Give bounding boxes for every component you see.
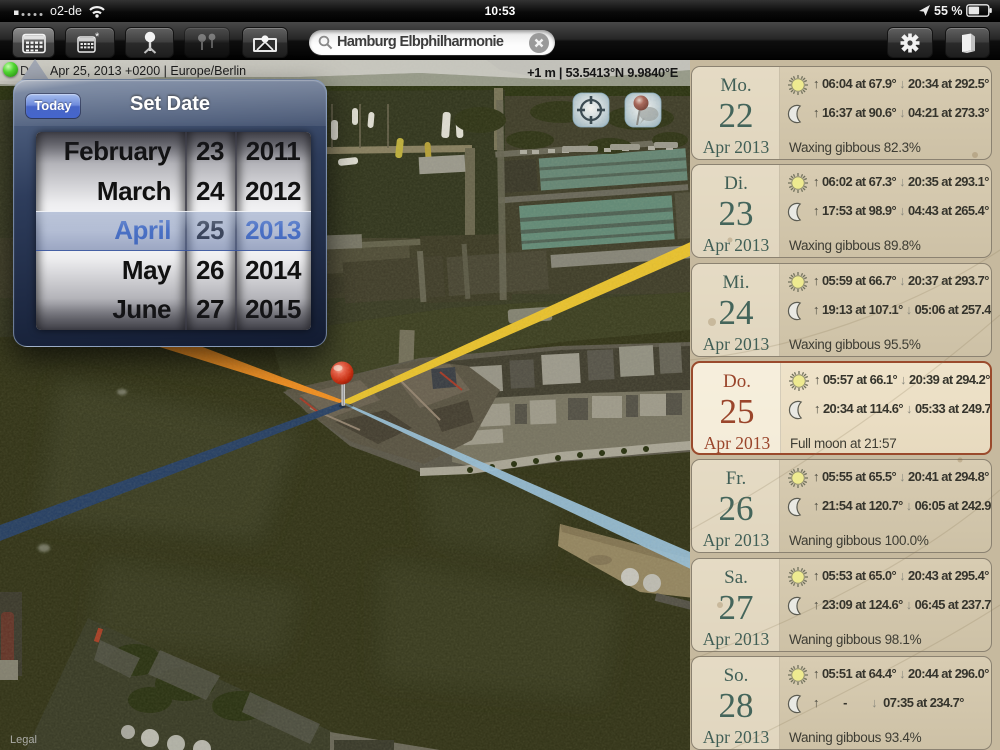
- svg-text:*: *: [95, 32, 100, 43]
- svg-text:Legal: Legal: [10, 734, 37, 746]
